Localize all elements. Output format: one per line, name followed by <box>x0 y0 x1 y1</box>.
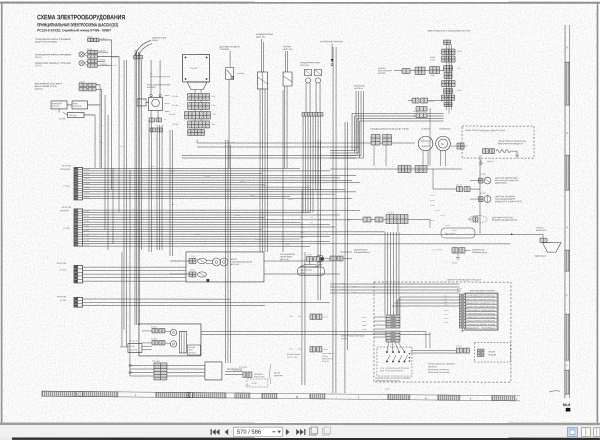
svg-text:Q: Q <box>296 396 298 399</box>
svg-text:570 / 586: 570 / 586 <box>237 429 261 436</box>
svg-text:(2 30): (2 30) <box>245 384 250 387</box>
svg-text:80-9: 80-9 <box>563 403 570 407</box>
svg-text:(2 30): (2 30) <box>385 388 390 391</box>
